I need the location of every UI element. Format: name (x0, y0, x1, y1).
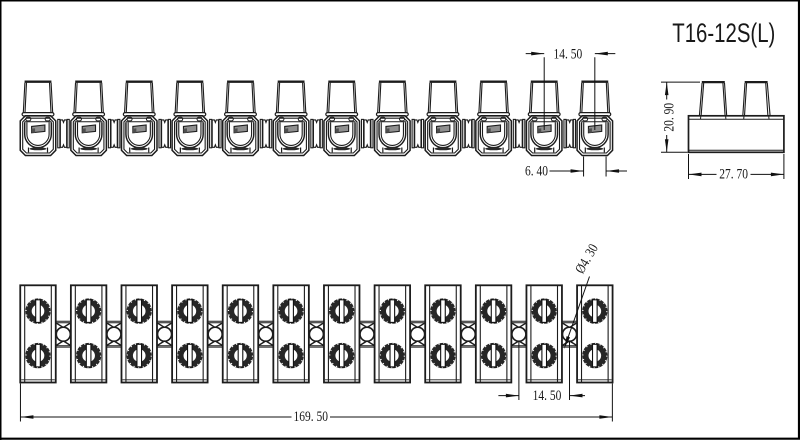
svg-text:169. 50: 169. 50 (294, 408, 328, 424)
svg-text:27. 70: 27. 70 (719, 165, 748, 181)
svg-text:14. 50: 14. 50 (554, 45, 583, 61)
svg-text:T16-12S(L): T16-12S(L) (672, 20, 775, 49)
svg-text:20. 90: 20. 90 (660, 103, 676, 132)
svg-text:6. 40: 6. 40 (525, 162, 548, 178)
svg-text:14. 50: 14. 50 (533, 387, 562, 403)
